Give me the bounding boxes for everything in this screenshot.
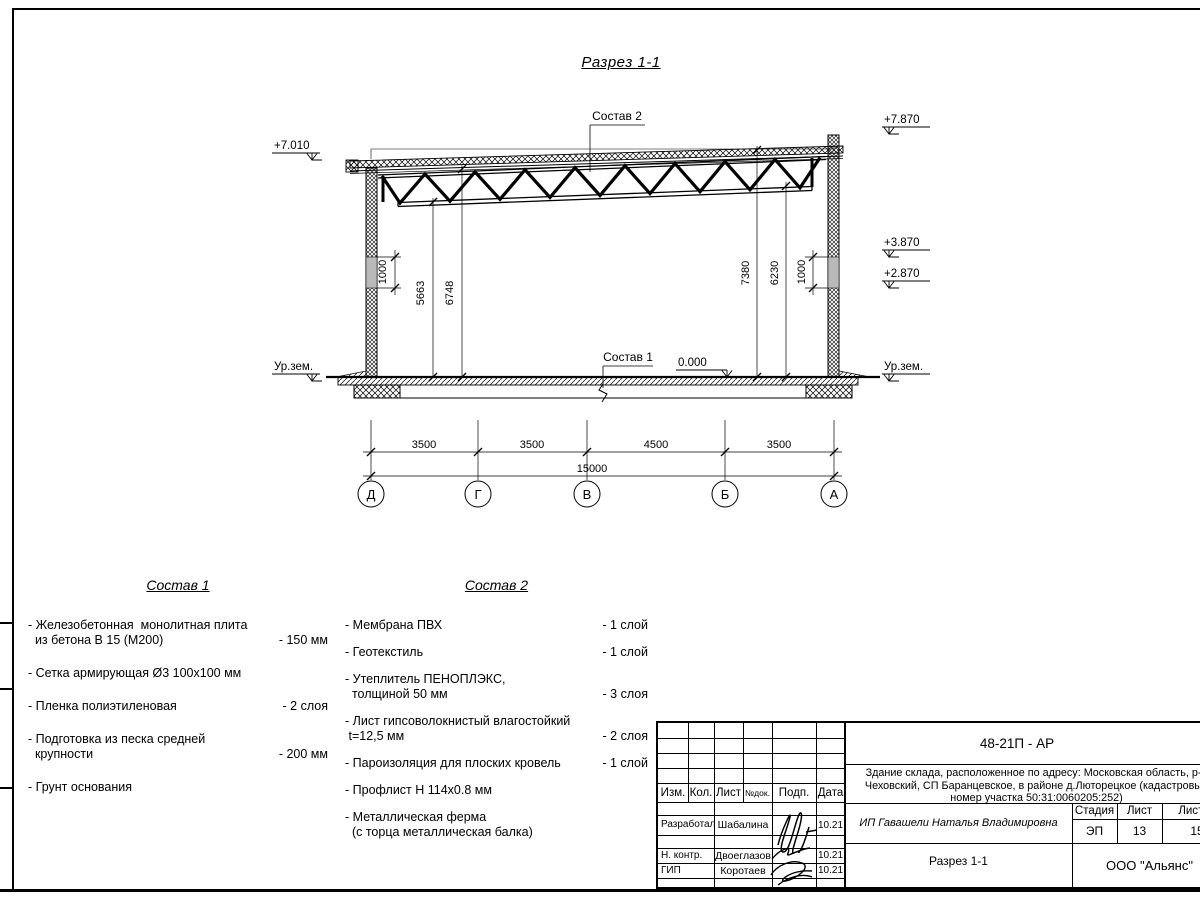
- hdim-total-value: 15000: [577, 463, 608, 475]
- material-qty: - 2 слоя: [603, 729, 648, 744]
- material-name: - Геотекстиль: [345, 645, 423, 660]
- tb-col-data: Дата: [816, 783, 845, 802]
- elevation-right-mid2: +2.870: [882, 268, 930, 288]
- drawing-sheet: { "drawing_title": "Разрез 1-1", "sectio…: [0, 0, 1200, 900]
- elevation-right-mid1: +3.870: [882, 237, 930, 257]
- sostav2-callout-label: Состав 2: [592, 109, 642, 123]
- left-window-band: [366, 257, 377, 288]
- sheet-frame-bottom: [0, 889, 1200, 892]
- drawing-view-title: Разрез 1-1: [521, 54, 721, 71]
- vdim-left-5663: 5663: [415, 198, 437, 381]
- tb-col-izm: Изм.: [658, 783, 688, 802]
- right-window-band: [828, 257, 839, 288]
- tb-stage-value: ЭП: [1072, 819, 1117, 843]
- tb-col-kol: Кол.: [688, 783, 714, 802]
- material-name: - Пленка полиэтиленовая: [28, 699, 177, 714]
- vdim-left-1000: 1000: [377, 250, 401, 295]
- section-drawing: Состав 2 Состав 1 +7.010 Ур.зем. +7.870 …: [250, 95, 960, 520]
- elevation-right-ground-value: Ур.зем.: [884, 361, 923, 373]
- walls: [366, 135, 839, 377]
- sheet-frame-left: [12, 8, 14, 889]
- axis-label: А: [830, 487, 839, 502]
- vdim-value: 1000: [377, 260, 389, 284]
- frame-tick-2: [0, 688, 13, 690]
- tb-date: 10.21: [816, 815, 845, 835]
- elevation-right-mid1-value: +3.870: [884, 237, 920, 249]
- tb-sheet-title: Разрез 1-1: [845, 843, 1072, 879]
- vdim-value: 6230: [769, 261, 781, 285]
- tb-line: [658, 738, 845, 739]
- list-item: - Профлист Н 114х0.8 мм: [345, 783, 648, 798]
- tb-project-line: Здание склада, расположенное по адресу: …: [845, 767, 1200, 780]
- roof-left-endcap: [346, 160, 358, 172]
- list-item: - Лист гипсоволокнистый влагостойкий t=1…: [345, 714, 648, 744]
- tb-col-ndok: №док.: [743, 783, 772, 802]
- tb-sheet-label: Лист: [1117, 803, 1162, 819]
- elevation-floor-zero-value: 0.000: [678, 357, 707, 369]
- elevation-left-top: +7.010: [272, 140, 322, 160]
- list-item: - Геотекстиль - 1 слой: [345, 645, 648, 660]
- list-item: - Утеплитель ПЕНОПЛЭКС, толщиной 50 мм -…: [345, 672, 648, 702]
- axis-bubble-b: Б: [712, 481, 738, 507]
- material-qty: - 1 слой: [602, 618, 648, 633]
- elevation-left-ground-value: Ур.зем.: [274, 361, 313, 373]
- elevation-right-mid2-value: +2.870: [884, 268, 920, 280]
- tb-role: ГИП: [661, 865, 715, 876]
- foundation-pad-right: [806, 385, 852, 398]
- tb-line: [658, 802, 845, 803]
- tb-project-line: Чеховский, СП Баранцевское, в районе д.Л…: [845, 780, 1200, 793]
- material-qty: - 150 мм: [279, 633, 328, 648]
- ground-wedge-right: [839, 371, 870, 377]
- axis-label: Д: [367, 487, 376, 502]
- right-wall: [828, 135, 839, 377]
- frame-tick-1: [0, 622, 13, 624]
- tb-role: Разработал: [661, 819, 715, 830]
- sostav1-heading: Состав 1: [28, 578, 328, 593]
- tb-sheets-label: Листов: [1162, 803, 1200, 819]
- list-item: - Подготовка из песка средней крупности …: [28, 732, 328, 762]
- tb-line: [845, 764, 1200, 765]
- list-item: - Грунт основания: [28, 780, 328, 795]
- tb-line: [658, 768, 845, 769]
- material-name: - Пароизоляция для плоских кровель: [345, 756, 561, 771]
- material-qty: - 1 слой: [602, 756, 648, 771]
- list-item: - Пароизоляция для плоских кровель - 1 с…: [345, 756, 648, 771]
- horizontal-dimensions: 3500 3500 4500 3500 15000: [363, 420, 842, 480]
- material-name: - Лист гипсоволокнистый влагостойкий t=1…: [345, 714, 570, 744]
- vdim-value: 6748: [444, 281, 456, 305]
- tb-stage-label: Стадия: [1072, 803, 1117, 819]
- tb-sheet-value: 13: [1117, 819, 1162, 843]
- material-qty: - 200 мм: [279, 747, 328, 762]
- sheet-frame-top: [12, 8, 1200, 10]
- material-name: - Подготовка из песка средней крупности: [28, 732, 205, 762]
- vdim-value: 7380: [740, 261, 752, 285]
- tb-date: 10.21: [816, 863, 845, 878]
- elevation-right-ground: Ур.зем.: [882, 361, 930, 381]
- ground-wedge-left: [336, 371, 366, 377]
- axis-bubble-g: Г: [465, 481, 491, 507]
- hdim-value: 3500: [412, 439, 436, 451]
- material-qty: - 2 слоя: [283, 699, 328, 714]
- tb-doc-number: 48-21П - АР: [845, 723, 1189, 764]
- sostav1-callout-label: Состав 1: [603, 350, 653, 364]
- axis-bubbles: Д Г В Б А: [358, 481, 847, 507]
- frame-tick-3: [0, 787, 13, 789]
- hdim-value: 4500: [644, 439, 668, 451]
- material-qty: - 3 слоя: [603, 687, 648, 702]
- hdim-value: 3500: [520, 439, 544, 451]
- tb-line: [658, 753, 845, 754]
- material-name: - Сетка армирующая Ø3 100х100 мм: [28, 666, 241, 681]
- vertical-dimensions: 1000 5663 6748 7380 6230: [377, 146, 828, 381]
- elevation-left-ground: Ур.зем.: [272, 361, 322, 381]
- elevation-right-top: +7.870: [882, 114, 930, 134]
- title-block: Изм. Кол. Лист №док. Подп. Дата Разработ…: [656, 721, 1200, 889]
- list-item: - Сетка армирующая Ø3 100х100 мм: [28, 666, 328, 681]
- list-item: - Мембрана ПВХ - 1 слой: [345, 618, 648, 633]
- hdim-value: 3500: [767, 439, 791, 451]
- foundation-pad-left: [354, 385, 400, 398]
- elevation-floor-zero: 0.000: [676, 357, 732, 377]
- tb-name: Коротаев: [714, 863, 772, 878]
- elevation-right-top-value: +7.870: [884, 114, 920, 126]
- sostav1-list: Состав 1 - Железобетонная монолитная пли…: [28, 578, 328, 813]
- tb-date: 10.21: [816, 848, 845, 863]
- tb-col-list: Лист: [714, 783, 743, 802]
- axis-label: Б: [721, 487, 730, 502]
- material-name: - Железобетонная монолитная плита из бет…: [28, 618, 247, 648]
- axis-label: В: [583, 487, 592, 502]
- tb-name: Шабалина: [714, 815, 772, 835]
- tb-role: Н. контр.: [661, 850, 715, 861]
- vdim-right-6230: 6230: [769, 182, 790, 381]
- sostav2-heading: Состав 2: [345, 578, 648, 593]
- vdim-right-1000: 1000: [796, 250, 828, 295]
- tb-client: ИП Гавашели Наталья Владимировна: [845, 803, 1072, 843]
- material-name: - Профлист Н 114х0.8 мм: [345, 783, 492, 798]
- tb-name: Двоеглазов: [714, 848, 772, 863]
- axis-bubble-d: Д: [358, 481, 384, 507]
- tb-project-description: Здание склада, расположенное по адресу: …: [845, 767, 1200, 805]
- axis-label: Г: [474, 487, 481, 502]
- material-name: - Грунт основания: [28, 780, 132, 795]
- list-item: - Металлическая ферма (с торца металличе…: [345, 810, 648, 840]
- sostav2-list: Состав 2 - Мембрана ПВХ - 1 слой - Геоте…: [345, 578, 648, 852]
- material-name: - Металлическая ферма (с торца металличе…: [345, 810, 533, 840]
- tb-company: ООО "Альянс": [1072, 843, 1200, 887]
- material-qty: - 1 слой: [602, 645, 648, 660]
- tb-col-podp: Подп.: [772, 783, 816, 802]
- material-name: - Утеплитель ПЕНОПЛЭКС, толщиной 50 мм: [345, 672, 505, 702]
- tb-sheets-value: 15: [1162, 819, 1200, 843]
- list-item: - Железобетонная монолитная плита из бет…: [28, 618, 328, 648]
- axis-bubble-a: А: [821, 481, 847, 507]
- list-item: - Пленка полиэтиленовая - 2 слоя: [28, 699, 328, 714]
- vdim-value: 1000: [796, 260, 808, 284]
- vdim-value: 5663: [415, 281, 427, 305]
- signature-control: [768, 843, 820, 889]
- axis-bubble-v: В: [574, 481, 600, 507]
- elevation-left-top-value: +7.010: [274, 140, 310, 152]
- material-name: - Мембрана ПВХ: [345, 618, 442, 633]
